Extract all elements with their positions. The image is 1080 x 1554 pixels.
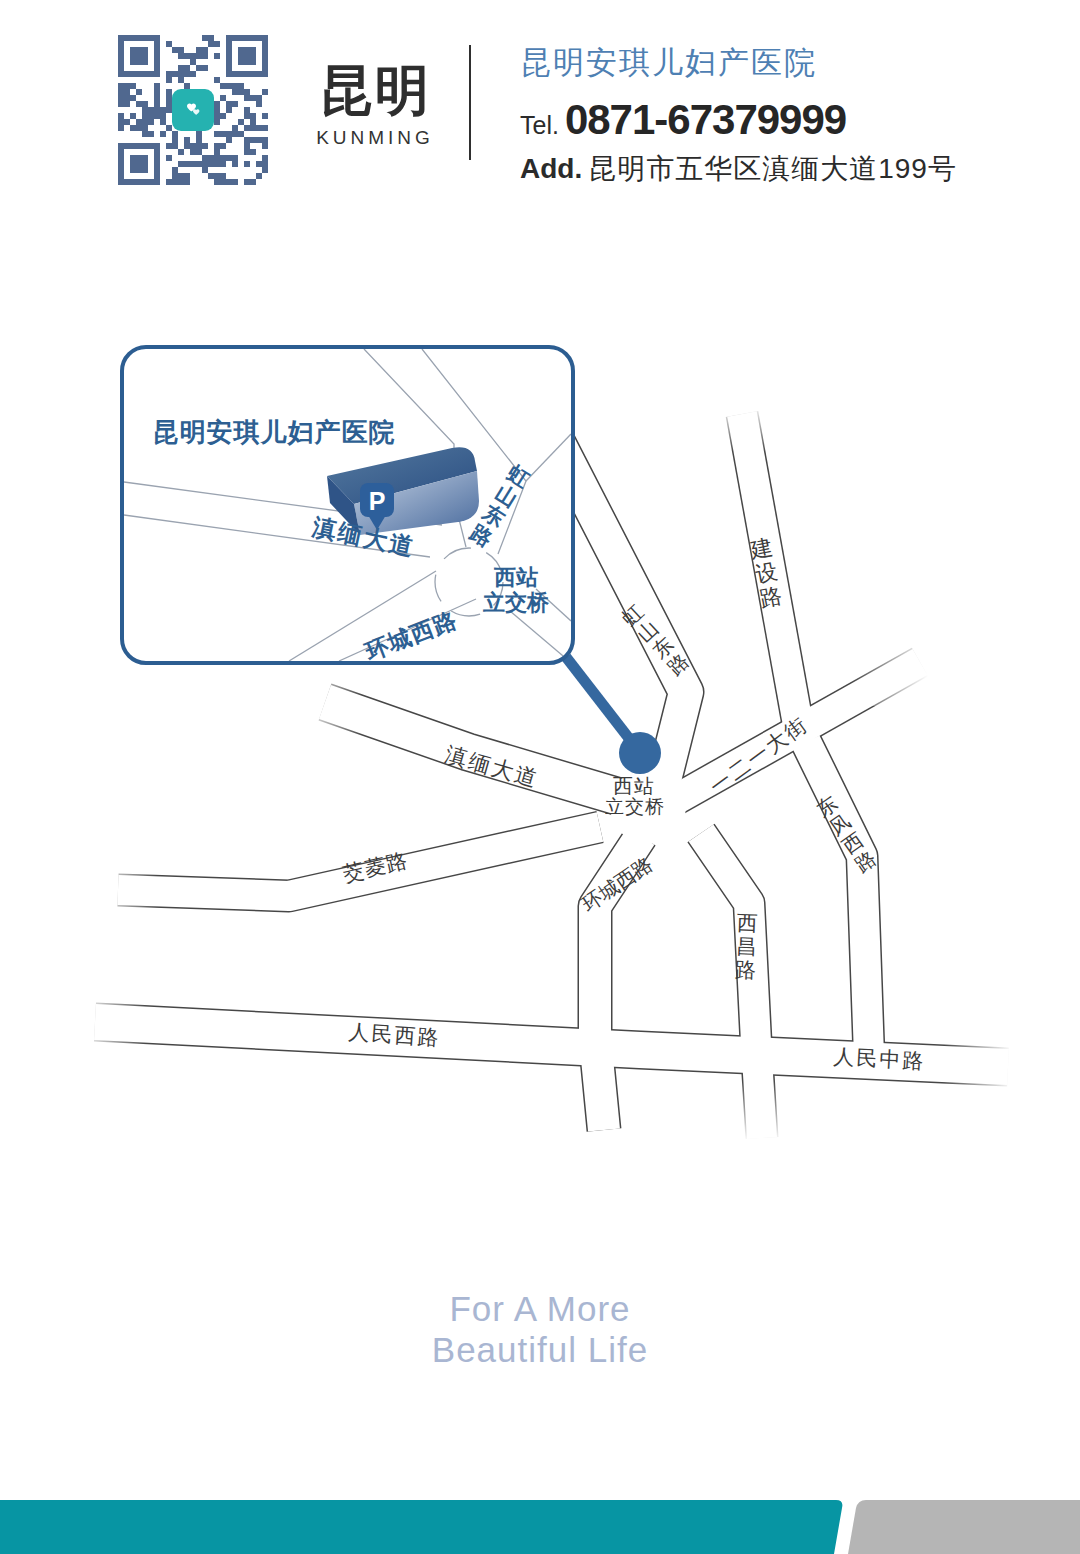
bottom-color-bar	[0, 1496, 1080, 1554]
footer-slogan-line2: Beautiful Life	[0, 1329, 1080, 1370]
tel-label: Tel.	[520, 111, 559, 140]
bottom-bar-teal	[0, 1500, 842, 1554]
interchange-label-line1: 西站	[613, 775, 655, 797]
parking-pin-letter: P	[369, 487, 386, 515]
header-divider	[469, 45, 471, 160]
inset-map-graphic: P 昆明安琪儿妇产医院 滇缅大道 虹山东路 西站 立交桥 环城西路	[124, 349, 571, 661]
interchange-label-line2: 立交桥	[605, 796, 665, 817]
header-contact-block: 昆明安琪儿妇产医院 Tel. 0871-67379999 Add. 昆明市五华区…	[520, 42, 990, 188]
tel-number: 0871-67379999	[565, 96, 846, 144]
bottom-bar-gray	[848, 1500, 1080, 1554]
inset-hospital-title: 昆明安琪儿妇产医院	[153, 417, 396, 447]
brand-name-cn: 昆明	[300, 62, 450, 119]
road-dongfeng-west	[806, 742, 869, 1056]
address-label: Add.	[520, 153, 582, 185]
inset-label-huancheng: 环城西路	[361, 606, 461, 661]
footer-slogan: For A More Beautiful Life	[0, 1288, 1080, 1371]
inset-label-interchange-line1: 西站	[493, 565, 538, 590]
fade-huancheng-south	[560, 1148, 638, 1234]
fade-dianmian-west	[300, 668, 362, 738]
brand-block: 昆明 KUNMING	[300, 62, 450, 149]
qr-center-logo-icon	[172, 89, 214, 131]
fade-renminxi-west	[80, 996, 146, 1058]
telephone-row: Tel. 0871-67379999	[520, 96, 990, 144]
fade-renminzhong-east	[944, 1036, 1012, 1092]
hospital-location-dot	[619, 732, 661, 774]
inset-detail-map: P 昆明安琪儿妇产医院 滇缅大道 虹山东路 西站 立交桥 环城西路	[120, 345, 575, 665]
inset-road-southeast-exit-1	[510, 611, 569, 661]
road-label-renmin-middle: 人民中路	[833, 1045, 926, 1073]
address-text: 昆明市五华区滇缅大道199号	[588, 150, 957, 188]
fade-jianshe-north	[716, 404, 800, 452]
address-row: Add. 昆明市五华区滇缅大道199号	[520, 150, 990, 188]
inset-road-branch-northeast	[526, 434, 571, 481]
footer-slogan-line1: For A More	[0, 1288, 1080, 1329]
inset-label-interchange-line2: 立交桥	[482, 590, 550, 615]
hospital-name: 昆明安琪儿妇产医院	[520, 42, 990, 84]
fade-jiaoling-west	[95, 866, 157, 922]
fade-xichang-south	[726, 1080, 794, 1142]
inset-leader-line	[566, 657, 638, 750]
brand-name-en: KUNMING	[300, 127, 450, 149]
road-label-xichang: 西昌路	[735, 911, 758, 982]
heart-cloud-icon	[180, 98, 206, 122]
fade-121-northeast	[852, 644, 928, 706]
